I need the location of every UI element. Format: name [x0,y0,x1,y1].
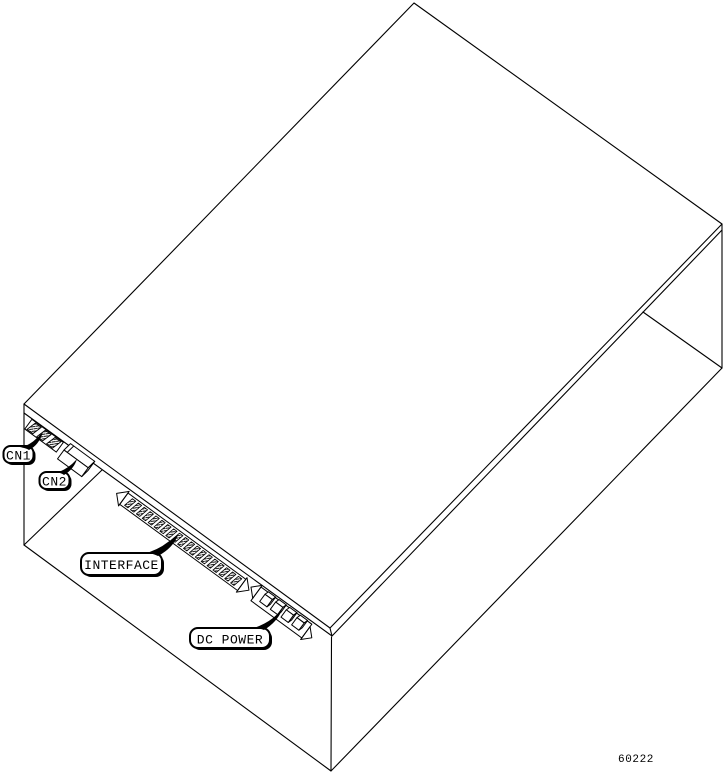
figure-canvas: CN1 CN2 INTERFACE DC POWER 60222 [0,0,726,776]
bottom-back-right-edge [643,312,722,368]
callout-cn2-label: CN2 [42,475,67,490]
callout-dc-power-label: DC POWER [197,633,263,648]
callout-interface: INTERFACE [81,535,178,577]
interface-connector [111,486,254,597]
isometric-unit-diagram: CN1 CN2 INTERFACE DC POWER 60222 [0,0,726,776]
figure-number: 60222 [618,754,654,766]
callout-dc-power: DC POWER [190,610,282,650]
enclosure-outline [24,3,722,771]
top-face-back-edges [24,3,722,404]
front-vertical-edge [331,637,332,771]
callout-cn1-label: CN1 [6,449,31,464]
callout-interface-pointer [143,535,178,556]
callout-interface-label: INTERFACE [84,558,159,573]
